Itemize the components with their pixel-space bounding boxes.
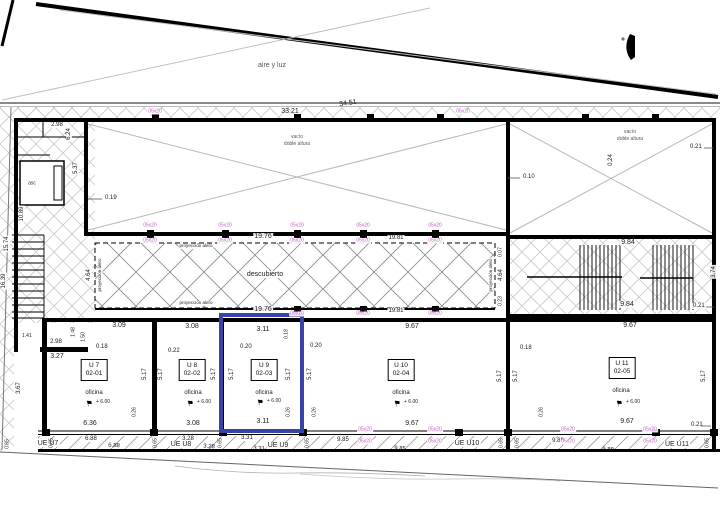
dim-label: 3.31	[253, 446, 265, 453]
level-label: + 6.00	[197, 400, 211, 405]
unit-use-label: oficina	[612, 388, 629, 394]
dim-label: 9.85	[336, 437, 350, 443]
dim-label: 3.09	[112, 322, 126, 329]
dim-label: 3.08	[186, 420, 200, 427]
unit-use-label: oficina	[184, 390, 201, 396]
annotation-proyeccion-alero: proyección alero	[178, 301, 213, 306]
dim-label: 0.65	[219, 438, 224, 448]
level-label: + 6.00	[267, 399, 281, 404]
column-size-label: 05x20	[642, 440, 658, 445]
dim-label: 0.10	[523, 174, 535, 180]
dim-label: 9.67	[620, 418, 634, 425]
dim-label: 0.65	[516, 438, 521, 448]
dim-label: 5.17	[229, 368, 235, 380]
dim-label: 5.17	[158, 368, 164, 380]
dim-label: 0.65	[706, 438, 711, 448]
column-size-label: 05x20	[357, 440, 373, 445]
dim-label: 0.26	[313, 407, 318, 417]
dim-label: 4.64	[498, 268, 504, 282]
dim-label: 0.65	[50, 438, 55, 448]
ue-label-u10: UE U10	[454, 440, 481, 447]
dim-label: 0.23	[499, 295, 504, 307]
room-label-void: doble altura	[284, 142, 310, 147]
unit-tag-u7[interactable]: U 702-01	[81, 359, 108, 381]
dim-label: 5.17	[286, 368, 292, 380]
dim-label: 33.21	[281, 108, 299, 115]
dim-label: 5.17	[211, 368, 217, 380]
room-label-void: vacío	[291, 135, 303, 140]
column-size-label: 05x20	[427, 312, 443, 317]
unit-use-label: oficina	[85, 390, 102, 396]
column-size-label: 05x20	[143, 224, 157, 229]
dim-label: 0.07	[499, 246, 504, 258]
dim-label: 5.17	[307, 368, 313, 380]
dim-label: 0.21	[690, 144, 702, 150]
dim-label: 3.28	[203, 444, 215, 451]
column-size-label: 05x20	[427, 440, 443, 445]
dim-label: 19.76	[253, 233, 273, 240]
room-label-void: doble altura	[617, 137, 643, 142]
dim-label: 3.67	[16, 382, 22, 394]
ue-label-u9: UE U9	[267, 442, 290, 449]
room-label-elevator: asc	[27, 182, 37, 187]
dim-label: 10.89	[19, 205, 25, 222]
dim-label: 15.74	[4, 235, 10, 252]
dim-label: 3.27	[50, 353, 64, 360]
column-size-label: 05x20	[427, 239, 443, 244]
dim-label: 9.84	[620, 239, 636, 246]
column-size-label: 05x20	[455, 110, 471, 115]
dim-label: 6.88	[108, 443, 120, 450]
level-label: + 6.00	[626, 400, 640, 405]
unit-id: U 9	[256, 362, 273, 370]
unit-id: U 11	[614, 360, 631, 368]
column-size-label: 05x20	[290, 224, 304, 229]
level-label: + 6.00	[96, 400, 110, 405]
dim-label: 0.65	[306, 438, 311, 448]
dim-label: 0.26	[133, 407, 138, 417]
unit-id: U 10	[393, 362, 410, 370]
column-size-label: 05x20	[147, 110, 163, 115]
unit-tag-u11[interactable]: U 1102-05	[609, 357, 636, 379]
unit-tag-u8[interactable]: U 802-02	[179, 359, 206, 381]
dim-label: 3.11	[256, 326, 269, 333]
dim-label: 9.67	[405, 420, 419, 427]
dim-label: 5.17	[497, 370, 503, 382]
column-size-label: 05x20	[642, 428, 658, 433]
unit-use-label: oficina	[255, 390, 272, 396]
unit-code: 02-01	[86, 370, 103, 378]
dim-label: 19.81	[387, 308, 404, 314]
dim-label: 0.65	[500, 438, 505, 448]
dim-label: 1.48	[72, 327, 77, 337]
dim-label: 0.19	[105, 195, 117, 201]
column-size-label: 05x20	[355, 239, 371, 244]
dim-label: 4.64	[86, 268, 92, 282]
unit-id: U 7	[86, 362, 103, 370]
dim-label: 5.37	[73, 161, 79, 175]
dim-label: 0.21	[691, 422, 703, 428]
unit-tag-u9[interactable]: U 902-03	[251, 359, 278, 381]
ue-label-u11: UE U11	[664, 441, 690, 448]
dim-label: 6.36	[83, 420, 97, 427]
dim-label: 0.20	[310, 343, 322, 349]
dim-label: 3.74	[711, 265, 717, 279]
unit-code: 02-02	[184, 370, 201, 378]
dim-label: 2.98	[50, 122, 64, 128]
dim-label: 9.84	[619, 301, 635, 308]
dim-label: 0.65	[154, 438, 159, 448]
annotation-proyeccion-alero: proyección alero	[489, 257, 494, 292]
column-size-label: 05x20	[217, 239, 233, 244]
unit-code: 02-04	[393, 370, 410, 378]
dim-label: 0.24	[608, 154, 614, 166]
dim-label: 3.08	[185, 323, 199, 330]
unit-id: U 8	[184, 362, 201, 370]
column-size-label: 05x20	[142, 239, 158, 244]
column-size-label: 05x20	[289, 312, 305, 317]
unit-tag-u10[interactable]: U 1002-04	[388, 359, 415, 381]
column-size-label: 05x20	[357, 428, 373, 433]
dim-label: 16.39	[1, 272, 7, 289]
annotation-proyeccion-alero: proyección alero	[178, 244, 213, 249]
column-size-label: 05x20	[356, 224, 370, 229]
column-size-label: 05x20	[289, 239, 305, 244]
room-label-void: vacío	[624, 130, 636, 135]
dim-label: 9.85	[394, 446, 406, 453]
column-size-label: 05x20	[560, 440, 576, 445]
dim-label: 19.81	[387, 235, 404, 241]
dim-label: 0.20	[240, 344, 252, 350]
level-label: + 6.00	[404, 400, 418, 405]
annotation-proyeccion-alero: proyección alero	[98, 257, 103, 292]
dim-label: 19.76	[253, 306, 273, 313]
dim-label: 3.11	[256, 418, 269, 425]
dim-label: 5.17	[513, 370, 519, 382]
dim-label: 5.17	[701, 370, 707, 382]
north-arrow-icon	[618, 30, 640, 64]
dim-label: 2.98	[50, 339, 62, 345]
column-size-label: 05x20	[427, 428, 443, 433]
dim-label: 0.21	[692, 303, 706, 309]
area-label-aire-y-luz: aire y luz	[258, 62, 286, 69]
dim-label: 1.50	[82, 332, 87, 342]
dim-label: 9.67	[405, 323, 419, 330]
floor-plan: aire y luz 33.21 34.51 05x20 05x20 2.98 …	[0, 0, 720, 532]
column-size-label: 05x20	[355, 312, 371, 317]
unit-use-label: oficina	[392, 390, 409, 396]
dim-label: 6.88	[84, 436, 98, 442]
dim-label: 0.65	[6, 439, 11, 449]
dim-label: 0.26	[287, 407, 292, 417]
dim-label: 9.67	[622, 322, 638, 329]
column-size-label: 05x20	[218, 224, 232, 229]
dim-label: 9.88	[602, 447, 614, 454]
dim-label: 0.18	[96, 344, 108, 350]
column-size-label: 05x20	[560, 428, 576, 433]
dim-label: 1.41	[22, 334, 32, 339]
area-label-descubierto: descubierto	[246, 271, 284, 278]
dim-label: 5.17	[142, 368, 148, 380]
dim-label: 0.22	[168, 348, 180, 354]
dim-label: 0.18	[285, 329, 290, 339]
dim-label: 3.31	[240, 435, 254, 441]
unit-code: 02-03	[256, 370, 273, 378]
unit-code: 02-05	[614, 368, 631, 376]
dim-label: 0.18	[520, 345, 532, 351]
dim-label: 6.24	[66, 127, 72, 141]
ue-label-u8: UE U8	[170, 441, 193, 448]
dim-label: 0.26	[540, 407, 545, 417]
column-size-label: 05x20	[428, 224, 442, 229]
